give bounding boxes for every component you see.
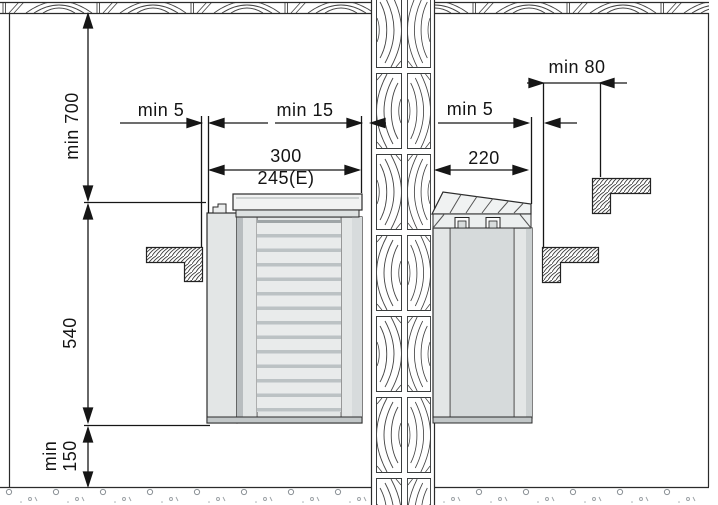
label-min5-front: min 5 (120, 100, 202, 120)
heater-front-base (207, 417, 362, 423)
ceiling (0, 2, 709, 14)
heater-front-slats (257, 220, 341, 412)
safety-rail-side-upper (593, 179, 651, 214)
safety-rail-side-lower (543, 248, 599, 283)
label-min80: min 80 (531, 57, 623, 77)
dim-min5-right (438, 119, 577, 128)
heater-control-knob (213, 204, 226, 213)
divider-wall (371, 0, 435, 505)
label-300: 300 (246, 146, 326, 166)
heater-front-view (207, 194, 362, 423)
label-min150: min 150 (40, 424, 80, 488)
dim-540 (84, 205, 93, 422)
dim-min80 (527, 79, 627, 88)
label-min700: min 700 (62, 71, 82, 181)
dim-min150 (84, 428, 93, 486)
heater-top-band (433, 214, 531, 228)
heater-control-column (207, 213, 237, 423)
label-245e: 245(E) (236, 168, 336, 188)
safety-rail-front-view (147, 248, 203, 282)
label-540: 540 (60, 298, 80, 368)
heater-side-base (433, 417, 532, 423)
label-min150-word: min (40, 424, 60, 488)
label-min15: min 15 (258, 100, 352, 120)
sauna-installation-diagram: min 700 540 min 150 min 5 min 15 300 245… (0, 0, 718, 505)
label-min5-side: min 5 (428, 99, 512, 119)
dim-min700 (84, 14, 93, 200)
heater-top-rim (233, 194, 362, 210)
label-min150-value: 150 (60, 424, 80, 488)
label-220: 220 (444, 148, 524, 168)
floor (0, 487, 709, 505)
heater-side-view (432, 192, 532, 423)
